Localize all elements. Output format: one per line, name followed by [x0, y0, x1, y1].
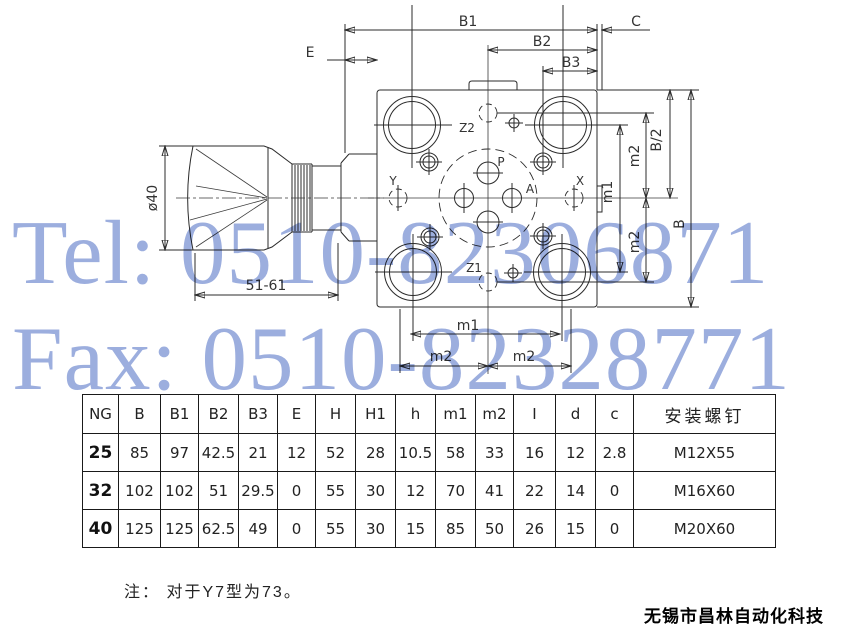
table-cell: 125: [119, 510, 161, 548]
table-cell: 2.8: [596, 434, 634, 472]
table-cell-ng: 40: [83, 510, 119, 548]
table-cell: M20X60: [634, 510, 776, 548]
bolt-holes: [416, 149, 556, 250]
table-cell: 52: [316, 434, 356, 472]
table-header-cell: H1: [356, 395, 396, 434]
table-cell: 85: [436, 510, 476, 548]
table-cell: 30: [356, 472, 396, 510]
table-header-cell: 安装螺钉: [634, 395, 776, 434]
table-header-cell: I: [514, 395, 556, 434]
table-header-cell: h: [396, 395, 436, 434]
table-cell: 29.5: [239, 472, 278, 510]
dim-label-m2-vertical-top: m2: [627, 145, 643, 168]
table-cell: 0: [596, 472, 634, 510]
dim-label-m1-horizontal: m1: [457, 318, 480, 334]
side-view: [176, 146, 384, 250]
dim-label-b2: B2: [533, 34, 552, 50]
table-cell: 33: [476, 434, 514, 472]
dimension-lines: B1 C B2 B3 E ø40 51-61 m1 m2 m2 B/2 B m1…: [145, 14, 699, 373]
table-cell: 49: [239, 510, 278, 548]
table-header-cell: m2: [476, 395, 514, 434]
dim-label-b-half: B/2: [649, 128, 665, 151]
table-cell: 85: [119, 434, 161, 472]
port-label-p: P: [497, 155, 504, 169]
dim-label-m2-left: m2: [430, 349, 453, 365]
port-label-z2: Z2: [459, 121, 475, 135]
table-header-cell: B1: [161, 395, 199, 434]
page: Z2 P A Y X Z1: [0, 0, 850, 634]
table-cell: 0: [596, 510, 634, 548]
table-cell: 21: [239, 434, 278, 472]
dim-label-phi40: ø40: [145, 185, 161, 211]
table-cell: 102: [161, 472, 199, 510]
table-header-cell: B3: [239, 395, 278, 434]
table-body: 25859742.52112522810.5583316122.8M12X553…: [83, 434, 776, 548]
table-cell: 55: [316, 510, 356, 548]
dim-label-m1-vertical: m1: [600, 181, 616, 204]
table-cell: 16: [514, 434, 556, 472]
table-cell: 28: [356, 434, 396, 472]
dim-label-b: B: [672, 219, 688, 229]
table-cell: 62.5: [199, 510, 239, 548]
table-cell: 55: [316, 472, 356, 510]
note-text: 注： 对于Y7型为73。: [124, 578, 302, 602]
table-header-cell: NG: [83, 395, 119, 434]
table-cell: 26: [514, 510, 556, 548]
dim-label-e: E: [306, 45, 315, 61]
table-cell: 12: [396, 472, 436, 510]
port-label-y: Y: [388, 174, 397, 188]
dim-label-51-61: 51-61: [246, 278, 287, 294]
dim-label-m2-right: m2: [513, 349, 536, 365]
table-header-cell: B2: [199, 395, 239, 434]
dim-label-c: C: [631, 14, 641, 30]
table-row: 4012512562.5490553015855026150M20X60: [83, 510, 776, 548]
table-header-cell: H: [316, 395, 356, 434]
dim-label-b1: B1: [459, 14, 478, 30]
table-header-cell: B: [119, 395, 161, 434]
table-header-cell: d: [556, 395, 596, 434]
table-cell: 12: [278, 434, 316, 472]
table-cell: 15: [556, 510, 596, 548]
table-cell: 0: [278, 510, 316, 548]
table-row: 321021025129.50553012704122140M16X60: [83, 472, 776, 510]
table-cell: 30: [356, 510, 396, 548]
dim-label-b3: B3: [562, 55, 581, 71]
table-cell: 58: [436, 434, 476, 472]
port-label-x: X: [576, 174, 584, 188]
valve-technical-drawing: Z2 P A Y X Z1: [0, 0, 850, 392]
table-cell: 15: [396, 510, 436, 548]
table-cell-ng: 25: [83, 434, 119, 472]
top-tab: [469, 81, 517, 90]
table-header: NGBB1B2B3EHH1hm1m2Idc安装螺钉: [83, 395, 776, 434]
table-header-row: NGBB1B2B3EHH1hm1m2Idc安装螺钉: [83, 395, 776, 434]
table-cell: 0: [278, 472, 316, 510]
table-header-cell: m1: [436, 395, 476, 434]
counterbore-holes: [384, 97, 592, 301]
table-header-cell: c: [596, 395, 634, 434]
table-cell: 22: [514, 472, 556, 510]
table-cell: M16X60: [634, 472, 776, 510]
table-header-cell: E: [278, 395, 316, 434]
table-cell: 102: [119, 472, 161, 510]
table-cell: 42.5: [199, 434, 239, 472]
table-cell: M12X55: [634, 434, 776, 472]
dim-label-m2-vertical-bottom: m2: [627, 231, 643, 254]
table-cell: 41: [476, 472, 514, 510]
table-row: 25859742.52112522810.5583316122.8M12X55: [83, 434, 776, 472]
table-cell: 12: [556, 434, 596, 472]
table-cell: 70: [436, 472, 476, 510]
dimension-table: NGBB1B2B3EHH1hm1m2Idc安装螺钉 25859742.52112…: [82, 394, 776, 548]
port-label-a: A: [526, 182, 535, 196]
table-cell: 50: [476, 510, 514, 548]
table-cell: 51: [199, 472, 239, 510]
port-label-z1: Z1: [466, 261, 482, 275]
table-cell-ng: 32: [83, 472, 119, 510]
table-cell: 14: [556, 472, 596, 510]
table-cell: 10.5: [396, 434, 436, 472]
table-cell: 125: [161, 510, 199, 548]
dashed-ports: [389, 104, 583, 291]
table-cell: 97: [161, 434, 199, 472]
front-view: Z2 P A Y X Z1: [368, 5, 678, 374]
company-name: 无锡市昌林自动化科技: [644, 602, 824, 627]
